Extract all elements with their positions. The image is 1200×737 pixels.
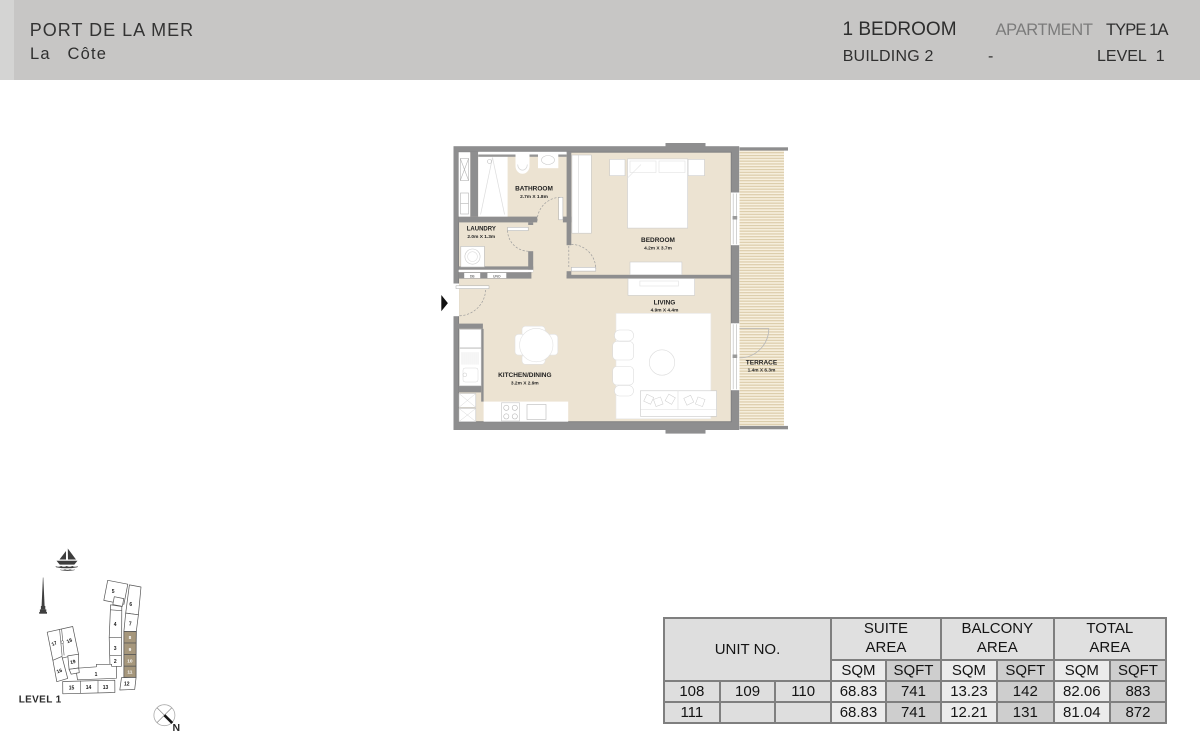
svg-text:13: 13 <box>103 685 109 691</box>
svg-text:TERRACE: TERRACE <box>746 359 778 366</box>
svg-text:5: 5 <box>112 589 115 595</box>
svg-text:9: 9 <box>129 647 132 653</box>
svg-text:15: 15 <box>69 685 75 691</box>
svg-text:BEDROOM: BEDROOM <box>641 237 675 244</box>
svg-text:2.7m X 1.8m: 2.7m X 1.8m <box>520 194 548 200</box>
svg-text:N: N <box>173 722 181 734</box>
svg-text:3: 3 <box>114 646 117 652</box>
svg-text:8: 8 <box>129 635 132 641</box>
svg-text:LEVEL 1: LEVEL 1 <box>19 695 62 706</box>
svg-text:3.2m X 2.9m: 3.2m X 2.9m <box>511 381 539 387</box>
svg-text:10: 10 <box>127 658 133 664</box>
svg-text:12: 12 <box>124 682 130 688</box>
svg-text:6: 6 <box>129 602 132 608</box>
svg-text:4: 4 <box>114 622 117 628</box>
svg-text:4.9m X 4.4m: 4.9m X 4.4m <box>651 308 679 314</box>
svg-text:DB: DB <box>470 275 475 279</box>
svg-text:KITCHEN/DINING: KITCHEN/DINING <box>498 372 551 379</box>
svg-text:1: 1 <box>95 672 98 678</box>
svg-text:4.2m X 3.7m: 4.2m X 3.7m <box>644 246 672 252</box>
svg-text:14: 14 <box>86 685 92 691</box>
svg-text:LIVING: LIVING <box>654 299 676 306</box>
svg-text:LAUNDRY: LAUNDRY <box>467 227 496 233</box>
svg-text:11: 11 <box>127 670 132 676</box>
svg-text:7: 7 <box>129 621 132 627</box>
svg-text:UNO: UNO <box>493 275 501 279</box>
svg-text:2: 2 <box>114 659 117 665</box>
svg-text:BATHROOM: BATHROOM <box>515 186 553 193</box>
svg-text:1.4m X 6.3m: 1.4m X 6.3m <box>748 368 776 374</box>
svg-text:2.0m X 1.3m: 2.0m X 1.3m <box>467 234 495 240</box>
